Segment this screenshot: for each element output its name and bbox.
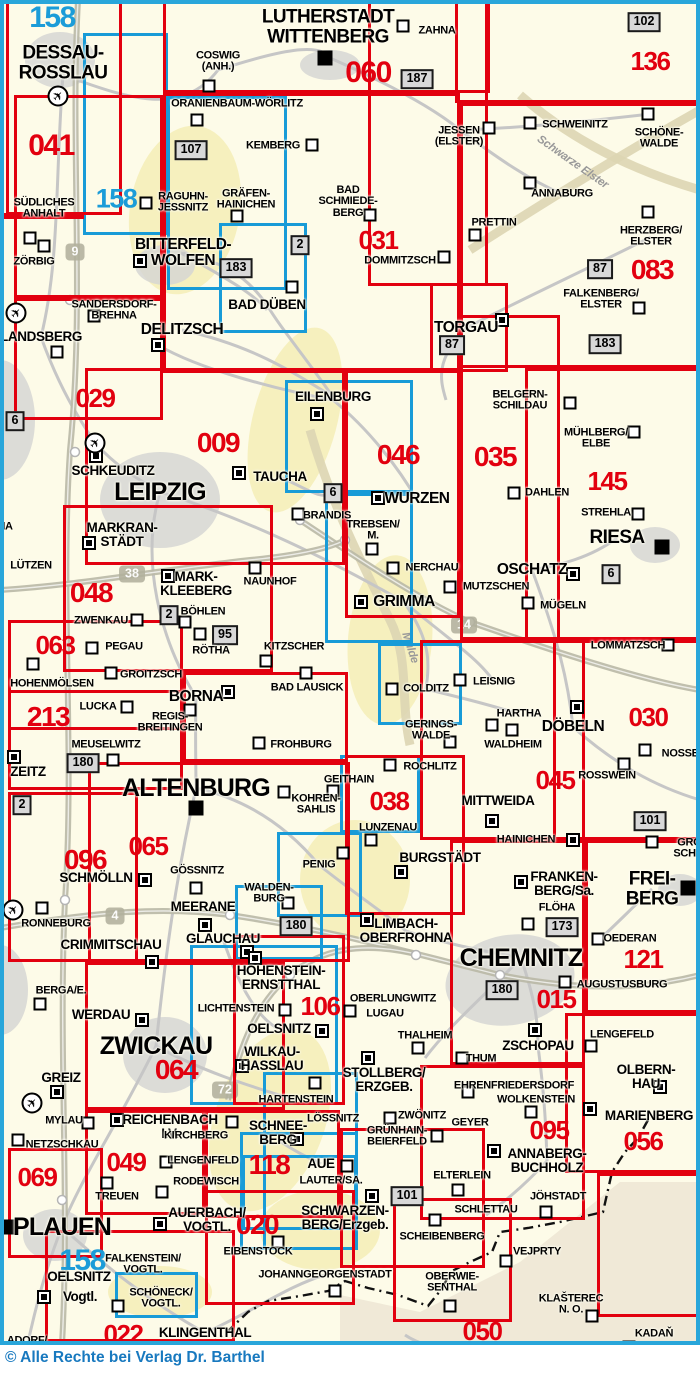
town-marker-dot bbox=[485, 814, 499, 828]
sheet-number: 045 bbox=[536, 767, 575, 793]
sheet-number: 063 bbox=[36, 632, 75, 658]
town-marker bbox=[387, 562, 400, 575]
town-label: FALKENSTEIN/ VOGTL. bbox=[105, 1254, 181, 1277]
town-marker bbox=[286, 281, 299, 294]
town-marker bbox=[131, 614, 144, 627]
town-label: ANNABURG bbox=[531, 188, 593, 199]
town-label: GÖSSNITZ bbox=[170, 865, 224, 876]
town-label: COSWIG (ANH.) bbox=[196, 51, 240, 74]
road-number-badge: 6 bbox=[6, 411, 25, 431]
sheet-number: 049 bbox=[107, 1149, 146, 1175]
town-marker bbox=[508, 487, 521, 500]
road-number-badge: 101 bbox=[634, 811, 667, 831]
town-label: LOMMATZSCH bbox=[591, 640, 665, 651]
airport-icon: ✈ bbox=[6, 303, 27, 324]
town-marker bbox=[366, 543, 379, 556]
town-marker-dot bbox=[50, 1085, 64, 1099]
map-frame-top bbox=[0, 0, 700, 4]
airport-icon: ✈ bbox=[85, 433, 106, 454]
town-marker bbox=[639, 744, 652, 757]
town-marker bbox=[646, 836, 659, 849]
sheet-number: 213 bbox=[27, 703, 69, 731]
town-label: ZWENKAU bbox=[74, 615, 128, 626]
city-marker bbox=[318, 51, 333, 66]
town-label: NERCHAU bbox=[406, 562, 459, 573]
road-number-badge: 101 bbox=[391, 1186, 424, 1206]
map-canvas: 9381447210718710218328787183295666218018… bbox=[0, 0, 700, 1345]
town-label: AUGUSTUSBURG bbox=[577, 979, 668, 990]
town-marker bbox=[522, 597, 535, 610]
town-marker-dot bbox=[566, 833, 580, 847]
town-label: THALHEIM bbox=[398, 1030, 452, 1041]
town-label: RAGUHN- JESSNITZ bbox=[158, 192, 208, 215]
town-label: TREBSEN/ M. bbox=[346, 520, 399, 543]
road-number-badge: 6 bbox=[324, 483, 343, 503]
town-label: MARIENBERG bbox=[605, 1109, 693, 1123]
town-label: LUTHERSTADT WITTENBERG bbox=[262, 7, 394, 47]
town-label: WOLKENSTEIN bbox=[497, 1094, 575, 1105]
town-label: BAD SCHMIEDE- BERG bbox=[318, 185, 377, 219]
copyright-text: © Alle Rechte bei Verlag Dr. Barthel bbox=[5, 1349, 265, 1366]
town-label: BITTERFELD- WOLFEN bbox=[135, 237, 231, 269]
road-number-badge: 180 bbox=[486, 980, 519, 1000]
town-label: EILENBURG bbox=[295, 390, 371, 404]
town-marker-dot bbox=[371, 491, 385, 505]
town-label: PENIG bbox=[303, 859, 336, 870]
town-label: HARTENSTEIN bbox=[259, 1094, 334, 1105]
town-label: WALDHEIM bbox=[484, 739, 541, 750]
town-label: LENGENFELD bbox=[167, 1155, 239, 1166]
town-marker bbox=[522, 918, 535, 931]
town-marker bbox=[306, 139, 319, 152]
town-label: JESSEN (ELSTER) bbox=[435, 126, 483, 149]
sheet-number: 145 bbox=[588, 468, 627, 494]
town-marker-dot bbox=[365, 1189, 379, 1203]
town-marker-dot bbox=[135, 1013, 149, 1027]
town-marker bbox=[524, 117, 537, 130]
sheet-number: 046 bbox=[377, 441, 419, 469]
sheet-number: 038 bbox=[370, 788, 409, 814]
town-label: KLINGENTHAL bbox=[159, 1326, 251, 1340]
town-label: DELITZSCH bbox=[141, 322, 223, 338]
town-marker bbox=[431, 1130, 444, 1143]
town-label: KITZSCHER bbox=[264, 641, 324, 652]
sheet-number: 035 bbox=[474, 443, 516, 471]
town-label: STREHLA bbox=[581, 507, 631, 518]
town-label: ZSCHOPAU bbox=[502, 1039, 574, 1053]
town-label: KLAŠTEREC N. O. bbox=[539, 1294, 604, 1317]
town-marker bbox=[105, 667, 118, 680]
town-marker bbox=[38, 240, 51, 253]
town-label: LUCKA bbox=[80, 701, 117, 712]
town-label: MÜGELN bbox=[540, 600, 586, 611]
town-marker bbox=[309, 1077, 322, 1090]
town-label: LAUTER/SA. bbox=[299, 1175, 362, 1186]
town-label: HOHENSTEIN- ERNSTTHAL bbox=[237, 964, 326, 992]
town-marker bbox=[101, 1177, 114, 1190]
town-marker-dot bbox=[394, 865, 408, 879]
town-label: DOMMITZSCH bbox=[364, 255, 436, 266]
town-marker bbox=[121, 701, 134, 714]
sheet-number: 060 bbox=[345, 58, 391, 88]
sheet-number: 064 bbox=[155, 1056, 197, 1084]
town-label: RIESA bbox=[589, 528, 644, 548]
town-marker bbox=[140, 197, 153, 210]
town-marker-dot bbox=[583, 1102, 597, 1116]
town-label: MARK- KLEEBERG bbox=[160, 570, 232, 598]
road-number-badge: 183 bbox=[589, 334, 622, 354]
town-label: SÜDLICHES ANHALT bbox=[14, 198, 75, 221]
town-label: BÖHLEN bbox=[181, 606, 226, 617]
town-marker bbox=[397, 20, 410, 33]
road-number-badge: 180 bbox=[280, 916, 313, 936]
road-number-badge: 173 bbox=[546, 917, 579, 937]
town-marker bbox=[329, 1285, 342, 1298]
town-marker bbox=[82, 1117, 95, 1130]
town-label: CHEMNITZ bbox=[460, 945, 583, 971]
town-marker bbox=[628, 426, 641, 439]
town-marker bbox=[337, 847, 350, 860]
town-label: KIRCHBERG bbox=[164, 1130, 228, 1141]
town-label: TAUCHA bbox=[253, 470, 307, 484]
road-number-badge: 2 bbox=[13, 795, 32, 815]
city-marker bbox=[189, 801, 204, 816]
town-label: ZWICKAU bbox=[100, 1033, 212, 1059]
town-label: OELSNITZ bbox=[247, 1022, 311, 1036]
town-label: HAINICHEN bbox=[497, 834, 555, 845]
town-marker bbox=[412, 1042, 425, 1055]
town-label: SCHKEUDITZ bbox=[72, 464, 155, 478]
sheet-number: 029 bbox=[76, 385, 115, 411]
town-label: REGIS- BREITINGEN bbox=[138, 712, 203, 735]
town-label: GLAUCHAU bbox=[186, 932, 260, 946]
town-label: MEUSELWITZ bbox=[71, 739, 140, 750]
sheet-number: 031 bbox=[359, 227, 398, 253]
sheet-number: 015 bbox=[537, 986, 576, 1012]
sheet-number: 121 bbox=[624, 946, 663, 972]
road-number-badge: 2 bbox=[291, 235, 310, 255]
town-marker-dot bbox=[232, 466, 246, 480]
town-label: BAD DÜBEN bbox=[228, 298, 305, 312]
town-label: LÜTZEN bbox=[10, 560, 52, 571]
road-number-badge: 95 bbox=[212, 625, 238, 645]
town-label: MYLAU bbox=[45, 1115, 83, 1126]
town-marker bbox=[341, 1160, 354, 1173]
town-label: LEIPZIG bbox=[114, 479, 206, 505]
town-label: BORNA bbox=[169, 689, 223, 705]
town-label: GROITZSCH bbox=[120, 669, 182, 680]
town-label: OLBERN- HAU bbox=[617, 1063, 676, 1091]
town-label: SCHMÖLLN bbox=[59, 871, 132, 885]
airport-icon: ✈ bbox=[48, 86, 69, 107]
town-label: DÖBELN bbox=[542, 719, 604, 735]
town-label: CRIMMITSCHAU bbox=[61, 938, 162, 952]
town-label: BAD LAUSICK bbox=[271, 682, 343, 693]
town-marker-dot bbox=[151, 338, 165, 352]
town-label: FRANKEN- BERG/Sa. bbox=[530, 870, 597, 898]
town-marker-dot bbox=[487, 1144, 501, 1158]
town-marker bbox=[344, 1005, 357, 1018]
town-marker bbox=[365, 834, 378, 847]
town-label: PRETTIN bbox=[472, 217, 517, 228]
town-marker-dot bbox=[145, 955, 159, 969]
sheet-number: 009 bbox=[197, 429, 239, 457]
town-marker bbox=[260, 655, 273, 668]
sheet-number: 095 bbox=[530, 1117, 569, 1143]
town-label: DESSAU- ROSSLAU bbox=[19, 43, 108, 83]
town-label: RODEWISCH bbox=[173, 1176, 239, 1187]
town-label: ELTERLEIN bbox=[433, 1170, 491, 1181]
city-marker bbox=[681, 881, 696, 896]
town-marker-dot bbox=[514, 875, 528, 889]
town-marker bbox=[506, 724, 519, 737]
road-number-badge: 107 bbox=[175, 140, 208, 160]
town-marker bbox=[12, 1134, 25, 1147]
town-label: ZWÖNITZ bbox=[398, 1110, 446, 1121]
town-marker bbox=[249, 562, 262, 575]
town-label: WERDAU bbox=[72, 1008, 130, 1022]
town-marker bbox=[386, 683, 399, 696]
town-label: HERZBERG/ ELSTER bbox=[620, 226, 682, 249]
town-label: OBERLUNGWITZ bbox=[350, 993, 436, 1004]
road-number-badge: 102 bbox=[628, 12, 661, 32]
town-label: MUTZSCHEN bbox=[463, 581, 529, 592]
sheet-number: 048 bbox=[70, 579, 112, 607]
city-marker bbox=[655, 540, 670, 555]
town-label: OBERWIE- SENTHAL bbox=[425, 1272, 479, 1295]
town-marker bbox=[540, 1206, 553, 1219]
town-label: WILKAU- HASSLAU bbox=[241, 1045, 303, 1073]
town-label: HARTHA bbox=[497, 708, 542, 719]
town-marker bbox=[226, 1116, 239, 1129]
town-marker bbox=[632, 508, 645, 521]
town-marker bbox=[279, 1004, 292, 1017]
town-marker bbox=[444, 1300, 457, 1313]
town-label: RÖTHA bbox=[192, 645, 230, 656]
town-marker bbox=[444, 581, 457, 594]
town-marker bbox=[107, 754, 120, 767]
town-marker bbox=[203, 80, 216, 93]
town-marker bbox=[564, 397, 577, 410]
town-label: NETZSCHKAU bbox=[26, 1139, 99, 1150]
town-marker bbox=[300, 667, 313, 680]
town-label: SCHNEE- BERG bbox=[249, 1119, 307, 1147]
town-marker-dot bbox=[138, 873, 152, 887]
town-marker-dot bbox=[310, 407, 324, 421]
town-marker bbox=[36, 902, 49, 915]
sheet-number-blue: 158 bbox=[29, 3, 75, 33]
road-number-badge: 6 bbox=[602, 564, 621, 584]
town-marker bbox=[642, 206, 655, 219]
town-marker bbox=[231, 210, 244, 223]
town-label: OSCHATZ bbox=[497, 562, 567, 578]
town-marker bbox=[454, 674, 467, 687]
sheet-number: 118 bbox=[249, 1151, 290, 1179]
town-marker-dot bbox=[37, 1290, 51, 1304]
road-number-badge: 2 bbox=[160, 605, 179, 625]
town-label: KOHREN- SAHLIS bbox=[291, 794, 340, 817]
sheet-number: 083 bbox=[631, 256, 673, 284]
town-label: SCHÖNECK/ VOGTL. bbox=[129, 1288, 192, 1311]
town-marker bbox=[483, 122, 496, 135]
town-label: TREUEN bbox=[95, 1191, 138, 1202]
town-label: JOHANNGEORGENSTADT bbox=[258, 1269, 391, 1280]
sheet-outline-red bbox=[597, 1173, 700, 1317]
town-label: MITTWEIDA bbox=[462, 794, 535, 808]
town-label: LUNZENAU bbox=[359, 822, 417, 833]
town-marker bbox=[429, 1214, 442, 1227]
town-label: SCHWEINITZ bbox=[542, 119, 607, 130]
town-label: FALKENBERG/ ELSTER bbox=[563, 289, 639, 312]
town-label: ZÖRBIG bbox=[14, 256, 55, 267]
town-label: WALDEN- BURG bbox=[244, 883, 293, 906]
map-screenshot: 9381447210718710218328787183295666218018… bbox=[0, 0, 700, 1385]
town-label: GEITHAIN bbox=[324, 774, 374, 785]
town-label: ROCHLITZ bbox=[403, 761, 456, 772]
town-marker bbox=[500, 1255, 513, 1268]
town-label: AUE bbox=[307, 1157, 334, 1171]
town-label: BRANDIS bbox=[303, 510, 351, 521]
sheet-number: 056 bbox=[624, 1128, 663, 1154]
town-label: LÖSSNITZ bbox=[307, 1113, 359, 1124]
sheet-number: 069 bbox=[18, 1164, 57, 1190]
town-label: MARKRAN- STÄDT bbox=[86, 521, 157, 549]
town-label: ORANIENBAUM-WÖRLITZ bbox=[171, 98, 303, 109]
road-number-badge: 87 bbox=[587, 259, 613, 279]
town-marker bbox=[452, 1184, 465, 1197]
map-frame-left bbox=[0, 0, 4, 1345]
town-label: PEGAU bbox=[105, 641, 143, 652]
town-label: JÖHSTADT bbox=[530, 1191, 586, 1202]
town-label: WURZEN bbox=[384, 491, 449, 507]
town-label: FLÖHA bbox=[539, 902, 575, 913]
town-label: EHRENFRIEDERSDORF bbox=[454, 1080, 574, 1091]
town-label: NOSSEN bbox=[662, 748, 700, 759]
town-label: THUM bbox=[466, 1053, 497, 1064]
town-label: LANDSBERG bbox=[0, 330, 82, 344]
town-label: LIMBACH- OBERFROHNA bbox=[360, 917, 453, 945]
town-label: GRÄFEN- HAINICHEN bbox=[217, 189, 275, 212]
town-label: ZAHNA bbox=[419, 25, 456, 36]
town-label: LICHTENSTEIN bbox=[198, 1003, 274, 1014]
town-marker bbox=[24, 232, 37, 245]
town-marker bbox=[156, 1186, 169, 1199]
town-label: GREIZ bbox=[41, 1071, 80, 1085]
town-label: SCHÖNE- WALDE bbox=[635, 128, 684, 151]
town-label: ANNABERG- BUCHHOLZ bbox=[508, 1147, 587, 1175]
town-marker-dot bbox=[566, 567, 580, 581]
town-marker bbox=[642, 108, 655, 121]
town-label: LENGEFELD bbox=[590, 1029, 654, 1040]
town-label: GEYER bbox=[451, 1117, 488, 1128]
town-label: ROSSWEIN bbox=[578, 770, 636, 781]
town-marker bbox=[191, 114, 204, 127]
town-marker bbox=[112, 1300, 125, 1313]
town-label: LEISNIG bbox=[473, 676, 515, 687]
town-label: BELGERN- SCHILDAU bbox=[492, 390, 547, 413]
town-label: OEDERAN bbox=[604, 933, 657, 944]
town-label: ALTENBURG bbox=[122, 775, 270, 801]
town-label: GRÜNHAIN- BEIERFELD bbox=[367, 1126, 427, 1149]
town-label: ZEITZ bbox=[10, 765, 46, 779]
town-marker bbox=[469, 229, 482, 242]
sheet-number-blue: 158 bbox=[96, 186, 137, 213]
sheet-number: 106 bbox=[301, 993, 340, 1019]
town-label: FREI- BERG bbox=[626, 869, 679, 909]
town-marker bbox=[253, 737, 266, 750]
town-label: MEERANE bbox=[171, 900, 236, 914]
town-label: EIBENSTOCK bbox=[224, 1246, 293, 1257]
copyright-bar: © Alle Rechte bei Verlag Dr. Barthel bbox=[0, 1345, 700, 1385]
town-label: KADAŇ bbox=[635, 1328, 673, 1339]
road-number-badge: 180 bbox=[67, 753, 100, 773]
town-label: AUERBACH/ VOGTL. bbox=[168, 1206, 245, 1234]
town-label: SANDERSDORF- BREHNA bbox=[71, 300, 156, 323]
road-number-badge: 87 bbox=[439, 335, 465, 355]
road-number-badge: 187 bbox=[401, 69, 434, 89]
sheet-number: 041 bbox=[28, 131, 74, 161]
town-marker bbox=[486, 719, 499, 732]
town-marker-dot bbox=[7, 750, 21, 764]
town-marker-dot bbox=[354, 595, 368, 609]
airport-icon: ✈ bbox=[22, 1093, 43, 1114]
town-marker bbox=[194, 628, 207, 641]
town-marker-dot bbox=[528, 1023, 542, 1037]
town-label: RONNEBURG bbox=[21, 918, 90, 929]
sheet-number: 065 bbox=[129, 833, 168, 859]
town-marker bbox=[384, 1112, 397, 1125]
town-label: MÜHLBERG/ ELBE bbox=[564, 428, 628, 451]
town-marker bbox=[585, 1040, 598, 1053]
town-label: STOLLBERG/ ERZGEB. bbox=[343, 1066, 426, 1094]
town-label: PLAUEN bbox=[13, 1214, 111, 1240]
town-label: FROHBURG bbox=[270, 739, 331, 750]
town-label: COLDITZ bbox=[403, 683, 449, 694]
town-label: GERINGS- WALDE bbox=[405, 720, 457, 743]
town-marker bbox=[384, 759, 397, 772]
town-marker bbox=[438, 251, 451, 264]
map-frame-right bbox=[696, 0, 700, 1345]
town-label: HOHENMÖLSEN bbox=[10, 678, 93, 689]
town-marker bbox=[278, 786, 291, 799]
town-label: SCHEIBENBERG bbox=[399, 1231, 484, 1242]
town-label: VEJPRTY bbox=[513, 1246, 561, 1257]
town-label: OELSNITZ bbox=[47, 1270, 111, 1284]
town-marker-dot bbox=[315, 1024, 329, 1038]
town-label: DAHLEN bbox=[525, 487, 569, 498]
town-label: LUGAU bbox=[366, 1008, 404, 1019]
town-marker bbox=[86, 642, 99, 655]
sheet-number: 136 bbox=[631, 48, 670, 74]
town-marker bbox=[51, 346, 64, 359]
sheet-number: 030 bbox=[629, 704, 668, 730]
town-marker-dot bbox=[153, 1217, 167, 1231]
town-label: SCHLETTAU bbox=[454, 1204, 517, 1215]
town-label: GRIMMA bbox=[373, 594, 435, 610]
town-marker bbox=[34, 998, 47, 1011]
town-label: BERGA/E. bbox=[36, 985, 87, 996]
town-marker-dot bbox=[198, 918, 212, 932]
town-marker bbox=[592, 933, 605, 946]
town-label: KEMBERG bbox=[246, 140, 300, 151]
town-label: TORGAU bbox=[434, 320, 498, 336]
town-label: SCHWARZEN- BERG/Erzgeb. bbox=[301, 1204, 389, 1232]
town-marker-dot bbox=[570, 700, 584, 714]
town-label: BURGSTÄDT bbox=[399, 851, 480, 865]
town-marker-dot bbox=[361, 1051, 375, 1065]
town-marker bbox=[190, 882, 203, 895]
town-label: Vogtl. bbox=[63, 1290, 97, 1304]
